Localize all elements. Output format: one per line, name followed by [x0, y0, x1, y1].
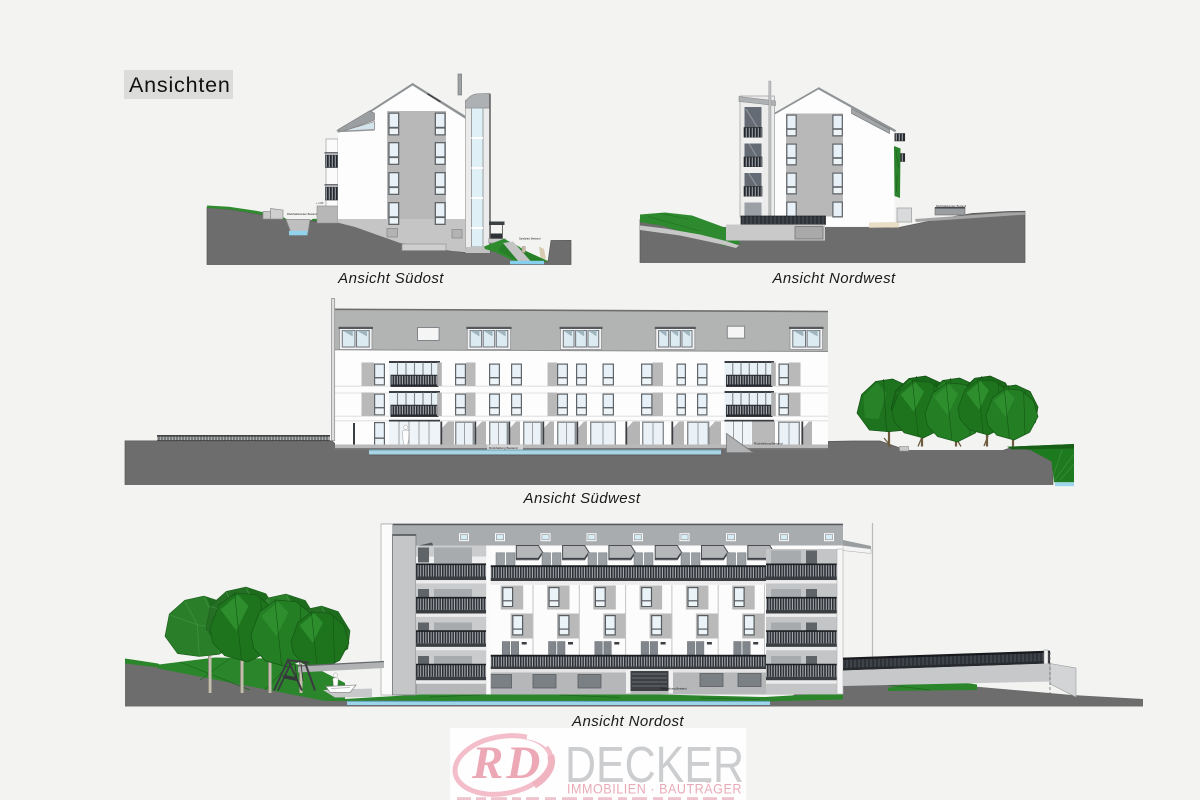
svg-text:Ansichten: Ansichten [129, 73, 231, 97]
svg-text:Rückhaltebecken Bestand: Rückhaltebecken Bestand [936, 204, 967, 208]
svg-text:RD: RD [471, 737, 543, 789]
svg-text:Rückhaltung Bestand: Rückhaltung Bestand [754, 442, 783, 446]
svg-text:Ansicht Südost: Ansicht Südost [337, 270, 444, 287]
svg-text:Rückhaltung Bestand: Rückhaltung Bestand [660, 687, 687, 691]
svg-text:IMMOBILIEN · BAUTRÄGER: IMMOBILIEN · BAUTRÄGER [567, 781, 742, 797]
svg-text:Ansicht Nordwest: Ansicht Nordwest [771, 270, 896, 287]
svg-text:Ansicht Nordost: Ansicht Nordost [571, 713, 684, 730]
svg-text:Spielplatz Bestand: Spielplatz Bestand [519, 237, 541, 241]
svg-text:Ansicht Südwest: Ansicht Südwest [523, 490, 641, 507]
svg-text:Rückhaltung Bestand: Rückhaltung Bestand [489, 446, 518, 450]
svg-text:+ 1,80: + 1,80 [316, 201, 324, 205]
svg-text:Rückhaltebecken Bestand: Rückhaltebecken Bestand [287, 212, 318, 216]
